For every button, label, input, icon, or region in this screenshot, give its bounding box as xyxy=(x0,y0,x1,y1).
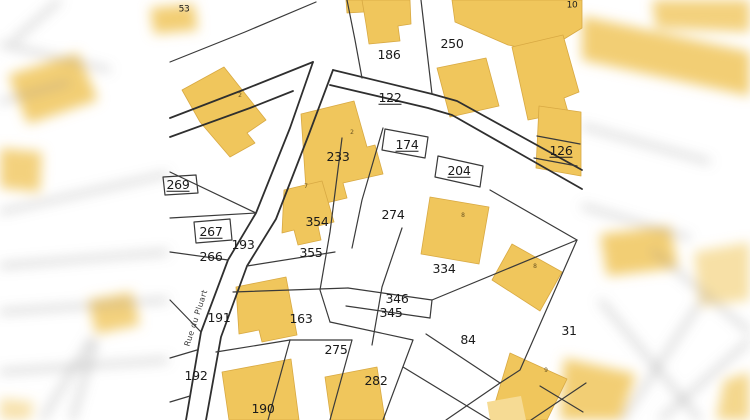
building xyxy=(325,367,385,420)
cadastral-map-canvas[interactable] xyxy=(0,0,750,420)
building xyxy=(421,197,489,264)
building xyxy=(236,277,297,342)
cadastral-map-screenshot: Rue du Pluart 18625012223317420412626935… xyxy=(0,0,750,420)
